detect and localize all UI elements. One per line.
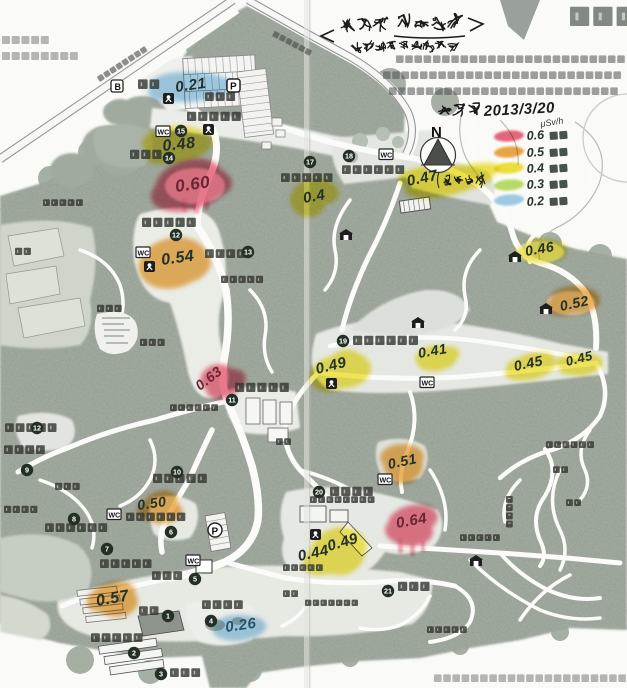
svg-text:WC: WC: [138, 250, 150, 257]
svg-text:0.6: 0.6: [526, 128, 545, 143]
svg-text:WC: WC: [158, 129, 170, 136]
svg-text:WC: WC: [381, 152, 393, 159]
svg-text:P: P: [230, 82, 237, 93]
svg-text:6: 6: [169, 528, 173, 537]
svg-text:WC: WC: [422, 380, 434, 387]
svg-text:1: 1: [166, 612, 170, 621]
svg-text:0.4: 0.4: [526, 161, 544, 176]
svg-text:3: 3: [159, 670, 163, 679]
svg-text:P: P: [212, 527, 219, 538]
svg-text:12: 12: [33, 424, 41, 433]
svg-text:B: B: [115, 82, 122, 92]
svg-text:N: N: [431, 124, 442, 141]
svg-text:20: 20: [315, 488, 323, 497]
svg-text:0.3: 0.3: [526, 177, 544, 192]
svg-text:WC: WC: [109, 512, 121, 519]
svg-text:2: 2: [132, 649, 136, 658]
svg-text:4: 4: [209, 617, 213, 626]
svg-text:17: 17: [306, 158, 314, 167]
svg-text:8: 8: [72, 515, 76, 524]
svg-text:WC: WC: [380, 477, 392, 484]
svg-text:12: 12: [172, 231, 180, 240]
svg-text:18: 18: [345, 152, 353, 161]
svg-text:0.2: 0.2: [526, 194, 544, 209]
svg-text:7: 7: [105, 545, 109, 554]
svg-text:21: 21: [384, 587, 392, 596]
svg-text:9: 9: [25, 466, 29, 475]
svg-text:13: 13: [244, 248, 252, 257]
svg-text:15: 15: [177, 127, 185, 136]
svg-text:WC: WC: [188, 558, 200, 565]
svg-text:0.5: 0.5: [526, 145, 545, 160]
svg-text:14: 14: [165, 154, 173, 163]
svg-text:0.48: 0.48: [162, 135, 197, 155]
svg-text:10: 10: [173, 468, 181, 477]
svg-text:19: 19: [339, 337, 347, 346]
svg-text:11: 11: [228, 396, 236, 405]
svg-text:5: 5: [193, 575, 197, 584]
